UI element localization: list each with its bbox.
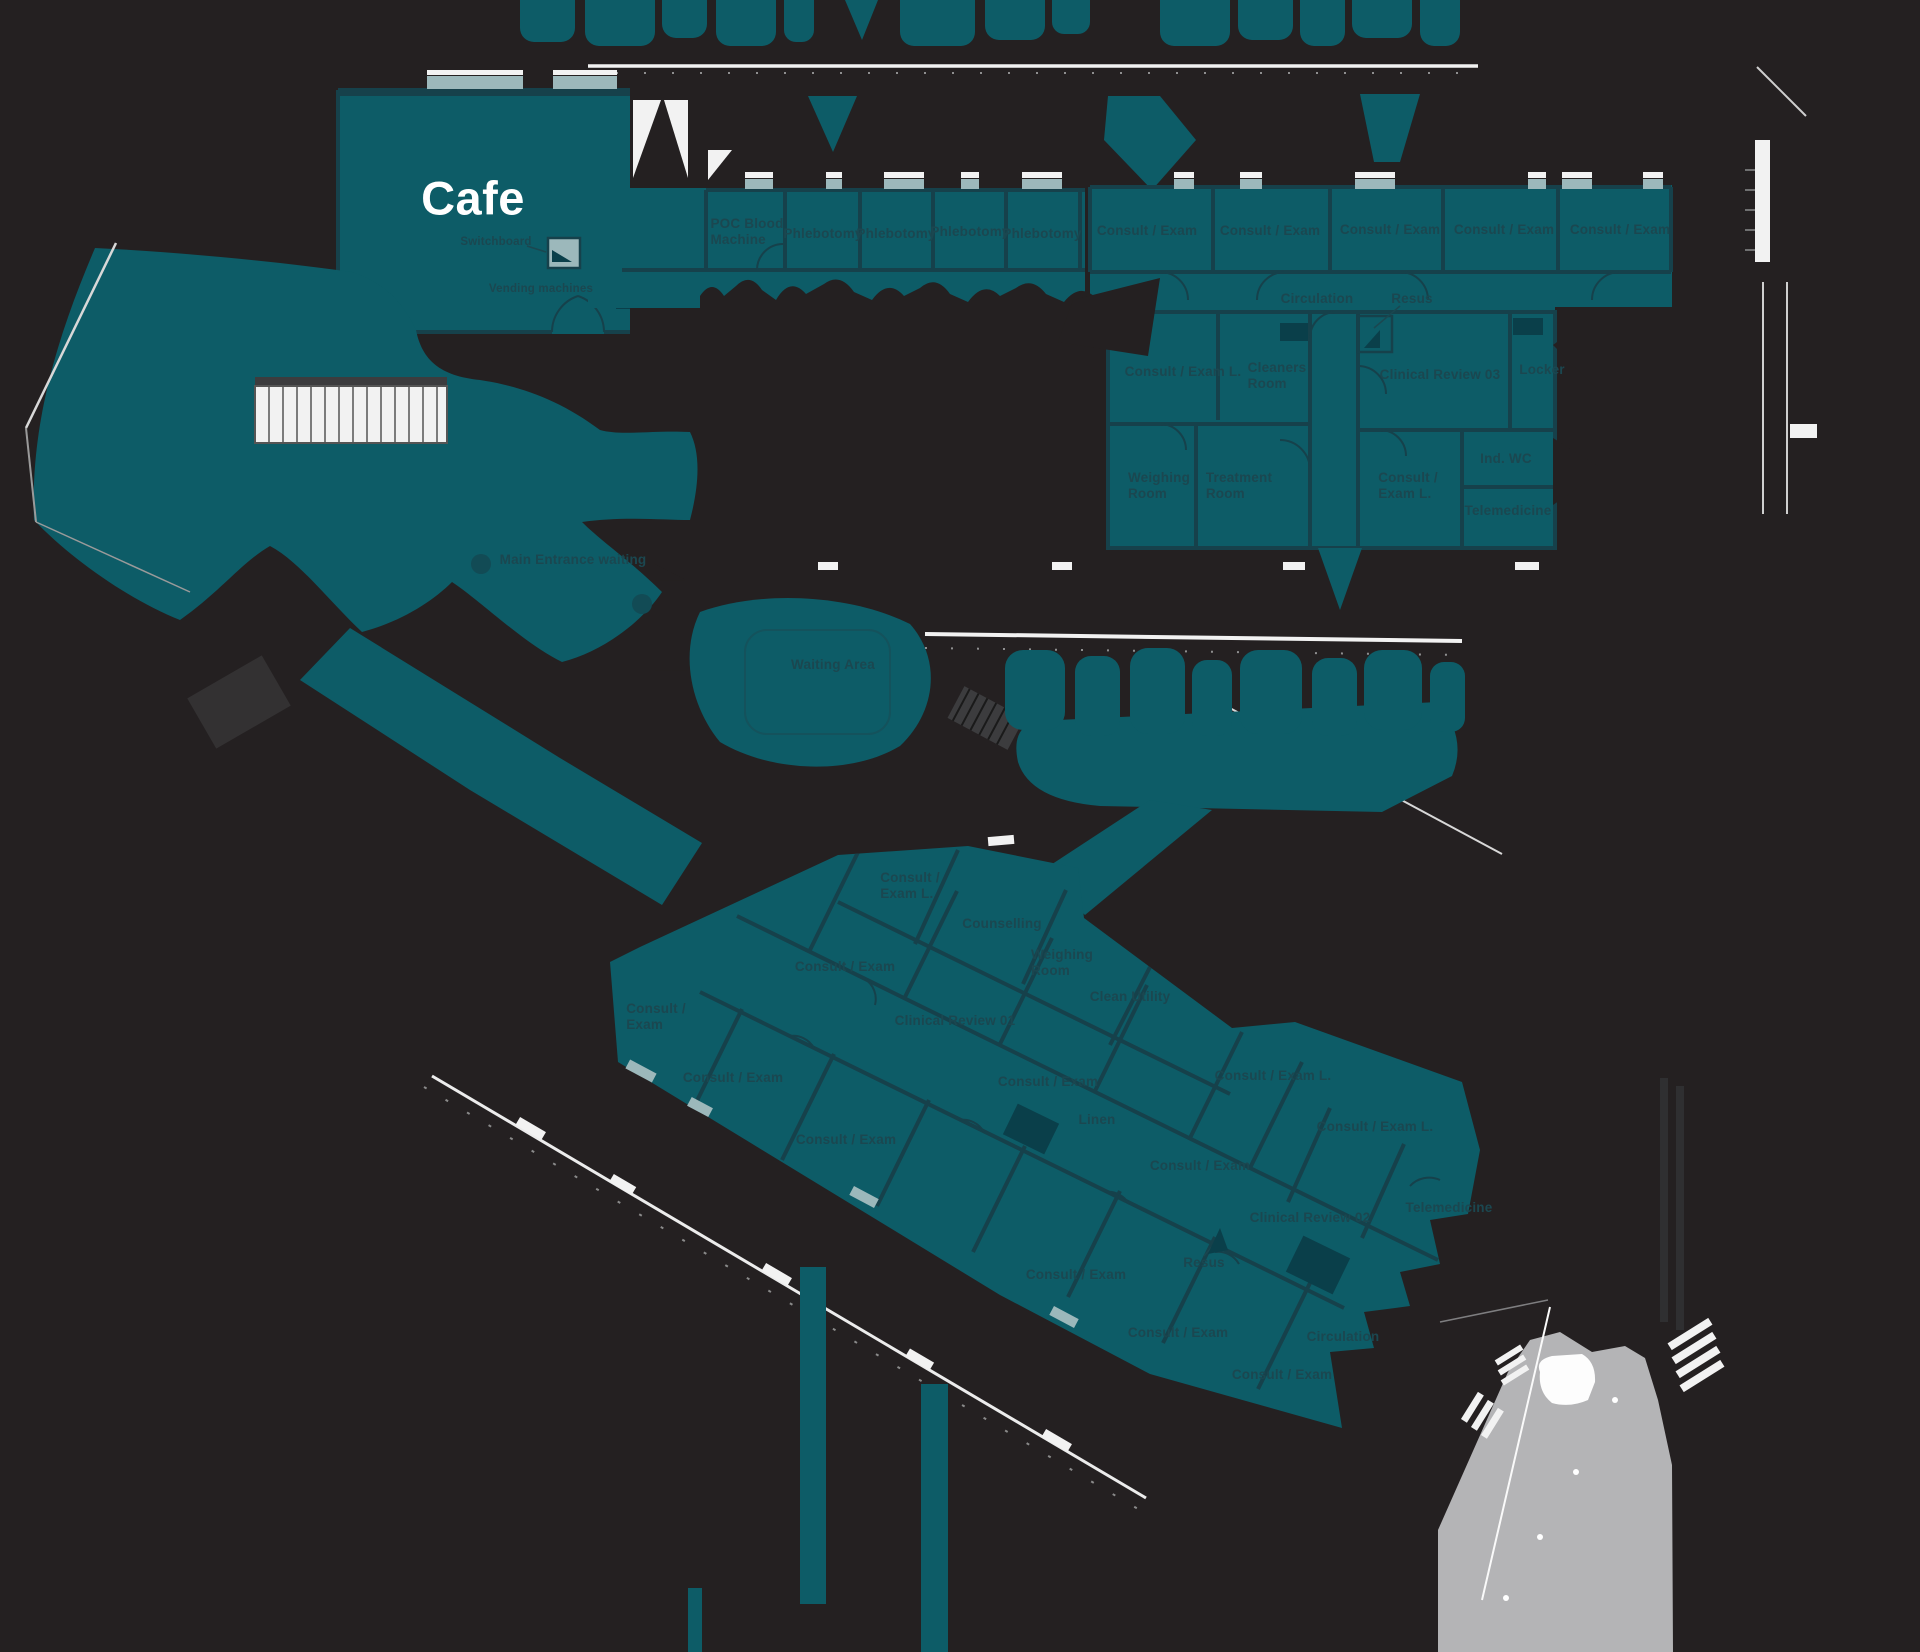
- room-label-clinical-review-03: Clinical Review 03: [1380, 367, 1501, 383]
- annotation-switchboard: Switchboard: [460, 236, 531, 250]
- room-label-consult-exam-w2: Consult / Exam: [626, 1001, 686, 1033]
- room-label-consult-exam-l-north2: Consult / Exam L.: [1378, 470, 1438, 502]
- room-label-counselling: Counselling: [962, 916, 1041, 932]
- stair-landing: [1755, 140, 1770, 262]
- room-label-phlebotomy-3: Phlebotomy: [930, 224, 1009, 240]
- area-label-waiting-area: Waiting Area: [791, 657, 875, 673]
- floor-plan-drawing: [0, 0, 1920, 1652]
- pillar: [471, 554, 491, 574]
- room-label-consult-exam-w7: Consult / Exam: [1026, 1267, 1126, 1283]
- room-label-consult-exam-n5: Consult / Exam: [1570, 222, 1670, 238]
- room-label-consult-exam-n3: Consult / Exam: [1340, 222, 1440, 238]
- room-label-clinical-review-01: Clinical Review 01: [895, 1013, 1016, 1029]
- room-label-consult-exam-w4: Consult / Exam: [998, 1074, 1098, 1090]
- room-label-ind-wc: Ind. WC: [1480, 451, 1532, 467]
- room-label-consult-exam-l-north: Consult / Exam L.: [1125, 364, 1242, 380]
- room-label-consult-exam-l-w1: Consult / Exam L.: [880, 870, 940, 902]
- room-label-consult-exam-l-w2: Consult / Exam L.: [1215, 1068, 1332, 1084]
- floor-plan: CafeSwitchboardVending machinesPOC Blood…: [0, 0, 1920, 1652]
- room-label-cleaners-room: Cleaners Room: [1248, 360, 1307, 392]
- room-label-linen: Linen: [1079, 1112, 1116, 1128]
- corridor-strip: [800, 1267, 826, 1604]
- room-label-consult-exam-w6: Consult / Exam: [1150, 1158, 1250, 1174]
- stairs-icon: [255, 377, 447, 443]
- room-label-consult-exam-l-w3: Consult / Exam L.: [1317, 1119, 1434, 1135]
- corridor-strip: [921, 1384, 948, 1652]
- pillar: [632, 594, 652, 614]
- room-label-consult-exam-w1: Consult / Exam: [795, 959, 895, 975]
- room-label-consult-exam-w3: Consult / Exam: [683, 1070, 783, 1086]
- room-label-consult-exam-n4: Consult / Exam: [1454, 222, 1554, 238]
- pond: [1539, 1354, 1595, 1405]
- corridor-strip: [688, 1588, 702, 1652]
- waiting-area-blob: [690, 598, 931, 767]
- room-label-phlebotomy-2: Phlebotomy: [856, 226, 935, 242]
- room-label-consult-exam-w8: Consult / Exam: [1128, 1325, 1228, 1341]
- room-label-consult-exam-w5: Consult / Exam: [796, 1132, 896, 1148]
- room-label-consult-exam-w9: Consult / Exam: [1232, 1367, 1332, 1383]
- room-label-poc-blood-machine: POC Blood Machine: [710, 216, 783, 248]
- room-label-telemedicine-wing: Telemedicine: [1406, 1200, 1493, 1216]
- corridor-label-circulation-north: Circulation: [1281, 291, 1354, 307]
- room-label-telemedicine-north: Telemedicine: [1465, 503, 1552, 519]
- room-label-resus-north: Resus: [1391, 291, 1433, 307]
- room-label-consult-exam-n1: Consult / Exam: [1097, 223, 1197, 239]
- annotation-vending-machines: Vending machines: [489, 283, 593, 297]
- room-label-cafe: Cafe: [421, 170, 525, 225]
- room-label-locker: Locker: [1519, 362, 1564, 378]
- room-label-clean-utility: Clean Utility: [1090, 989, 1171, 1005]
- room-label-consult-exam-n2: Consult / Exam: [1220, 223, 1320, 239]
- room-label-clinical-review-02: Clinical Review 02: [1250, 1210, 1371, 1226]
- corridor-label-circulation-wing: Circulation: [1307, 1329, 1380, 1345]
- area-label-main-entrance-waiting: Main Entrance waiting: [500, 552, 647, 568]
- room-label-weighing-room-wing: Weighing Room: [1031, 947, 1093, 979]
- room-label-treatment-room: Treatment Room: [1206, 470, 1272, 502]
- room-label-resus-wing: Resus: [1183, 1255, 1225, 1271]
- room-label-phlebotomy-1: Phlebotomy: [783, 226, 862, 242]
- room-label-phlebotomy-4: Phlebotomy: [1002, 226, 1081, 242]
- room-label-weighing-room-north: Weighing Room: [1128, 470, 1190, 502]
